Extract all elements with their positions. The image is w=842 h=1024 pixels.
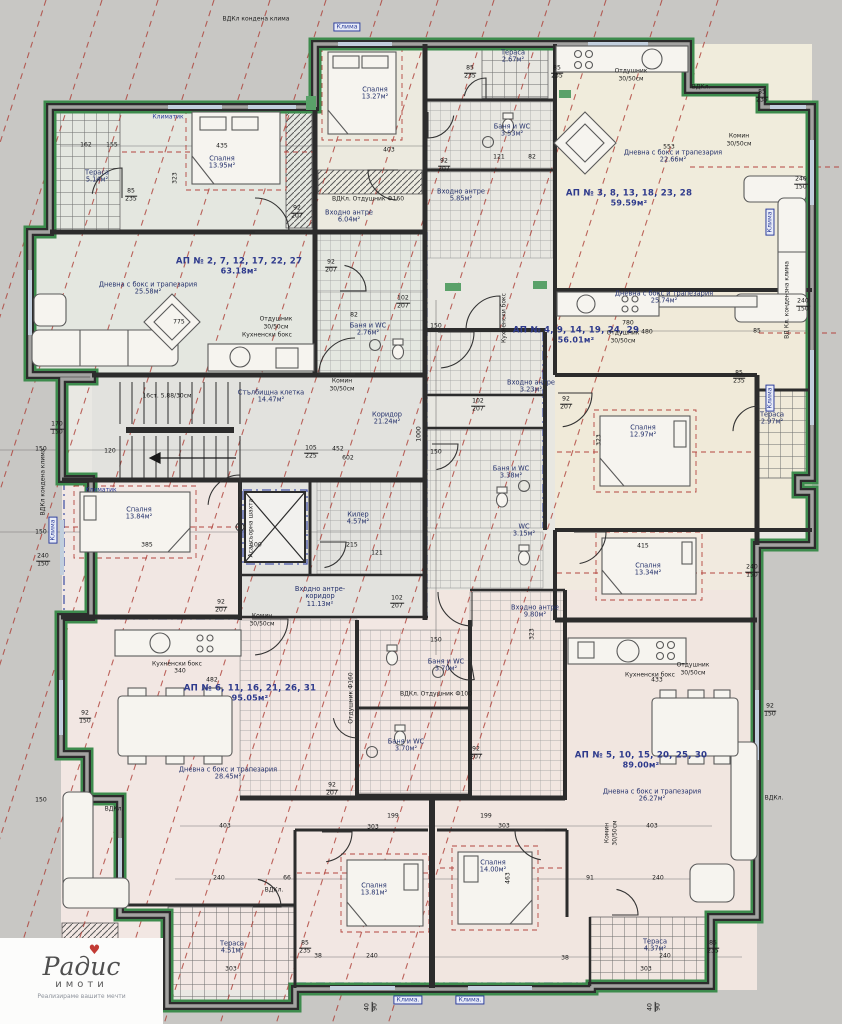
sideboard [645,296,757,307]
toilet [519,545,530,565]
agency-logo: ♥ Радис [43,952,121,981]
floor-plan-drawing [0,0,842,1024]
kitchen-counter [557,292,659,316]
bed [600,416,690,486]
kitchen-counter [556,46,688,72]
agency-name: Радис [43,952,121,981]
toilet [395,725,406,745]
bed [328,52,396,134]
bed [192,112,280,184]
kitchen-counter [115,630,241,656]
bed [602,538,696,594]
stair-handrail [126,427,234,433]
bed [347,860,423,926]
toilet [497,487,508,507]
bed [80,492,190,552]
agency-tagline: Реализираме вашите мечти [0,993,163,1000]
bed [458,852,532,924]
agency-logo-card: ♥ Радис имоти Реализираме вашите мечти [0,938,163,1024]
toilet [387,645,398,665]
toilet [503,113,514,133]
dining-table [652,690,738,764]
toilet [393,339,404,359]
dining-table [118,688,232,764]
kitchen-counter [208,344,314,371]
floor-plan-page: Тераса5.14м²Спалня13.95м²Спалня13.27м²Те… [0,0,842,1024]
heart-icon: ♥ [89,943,101,958]
elevator-shaft [236,492,305,562]
kitchen-counter [568,638,686,664]
